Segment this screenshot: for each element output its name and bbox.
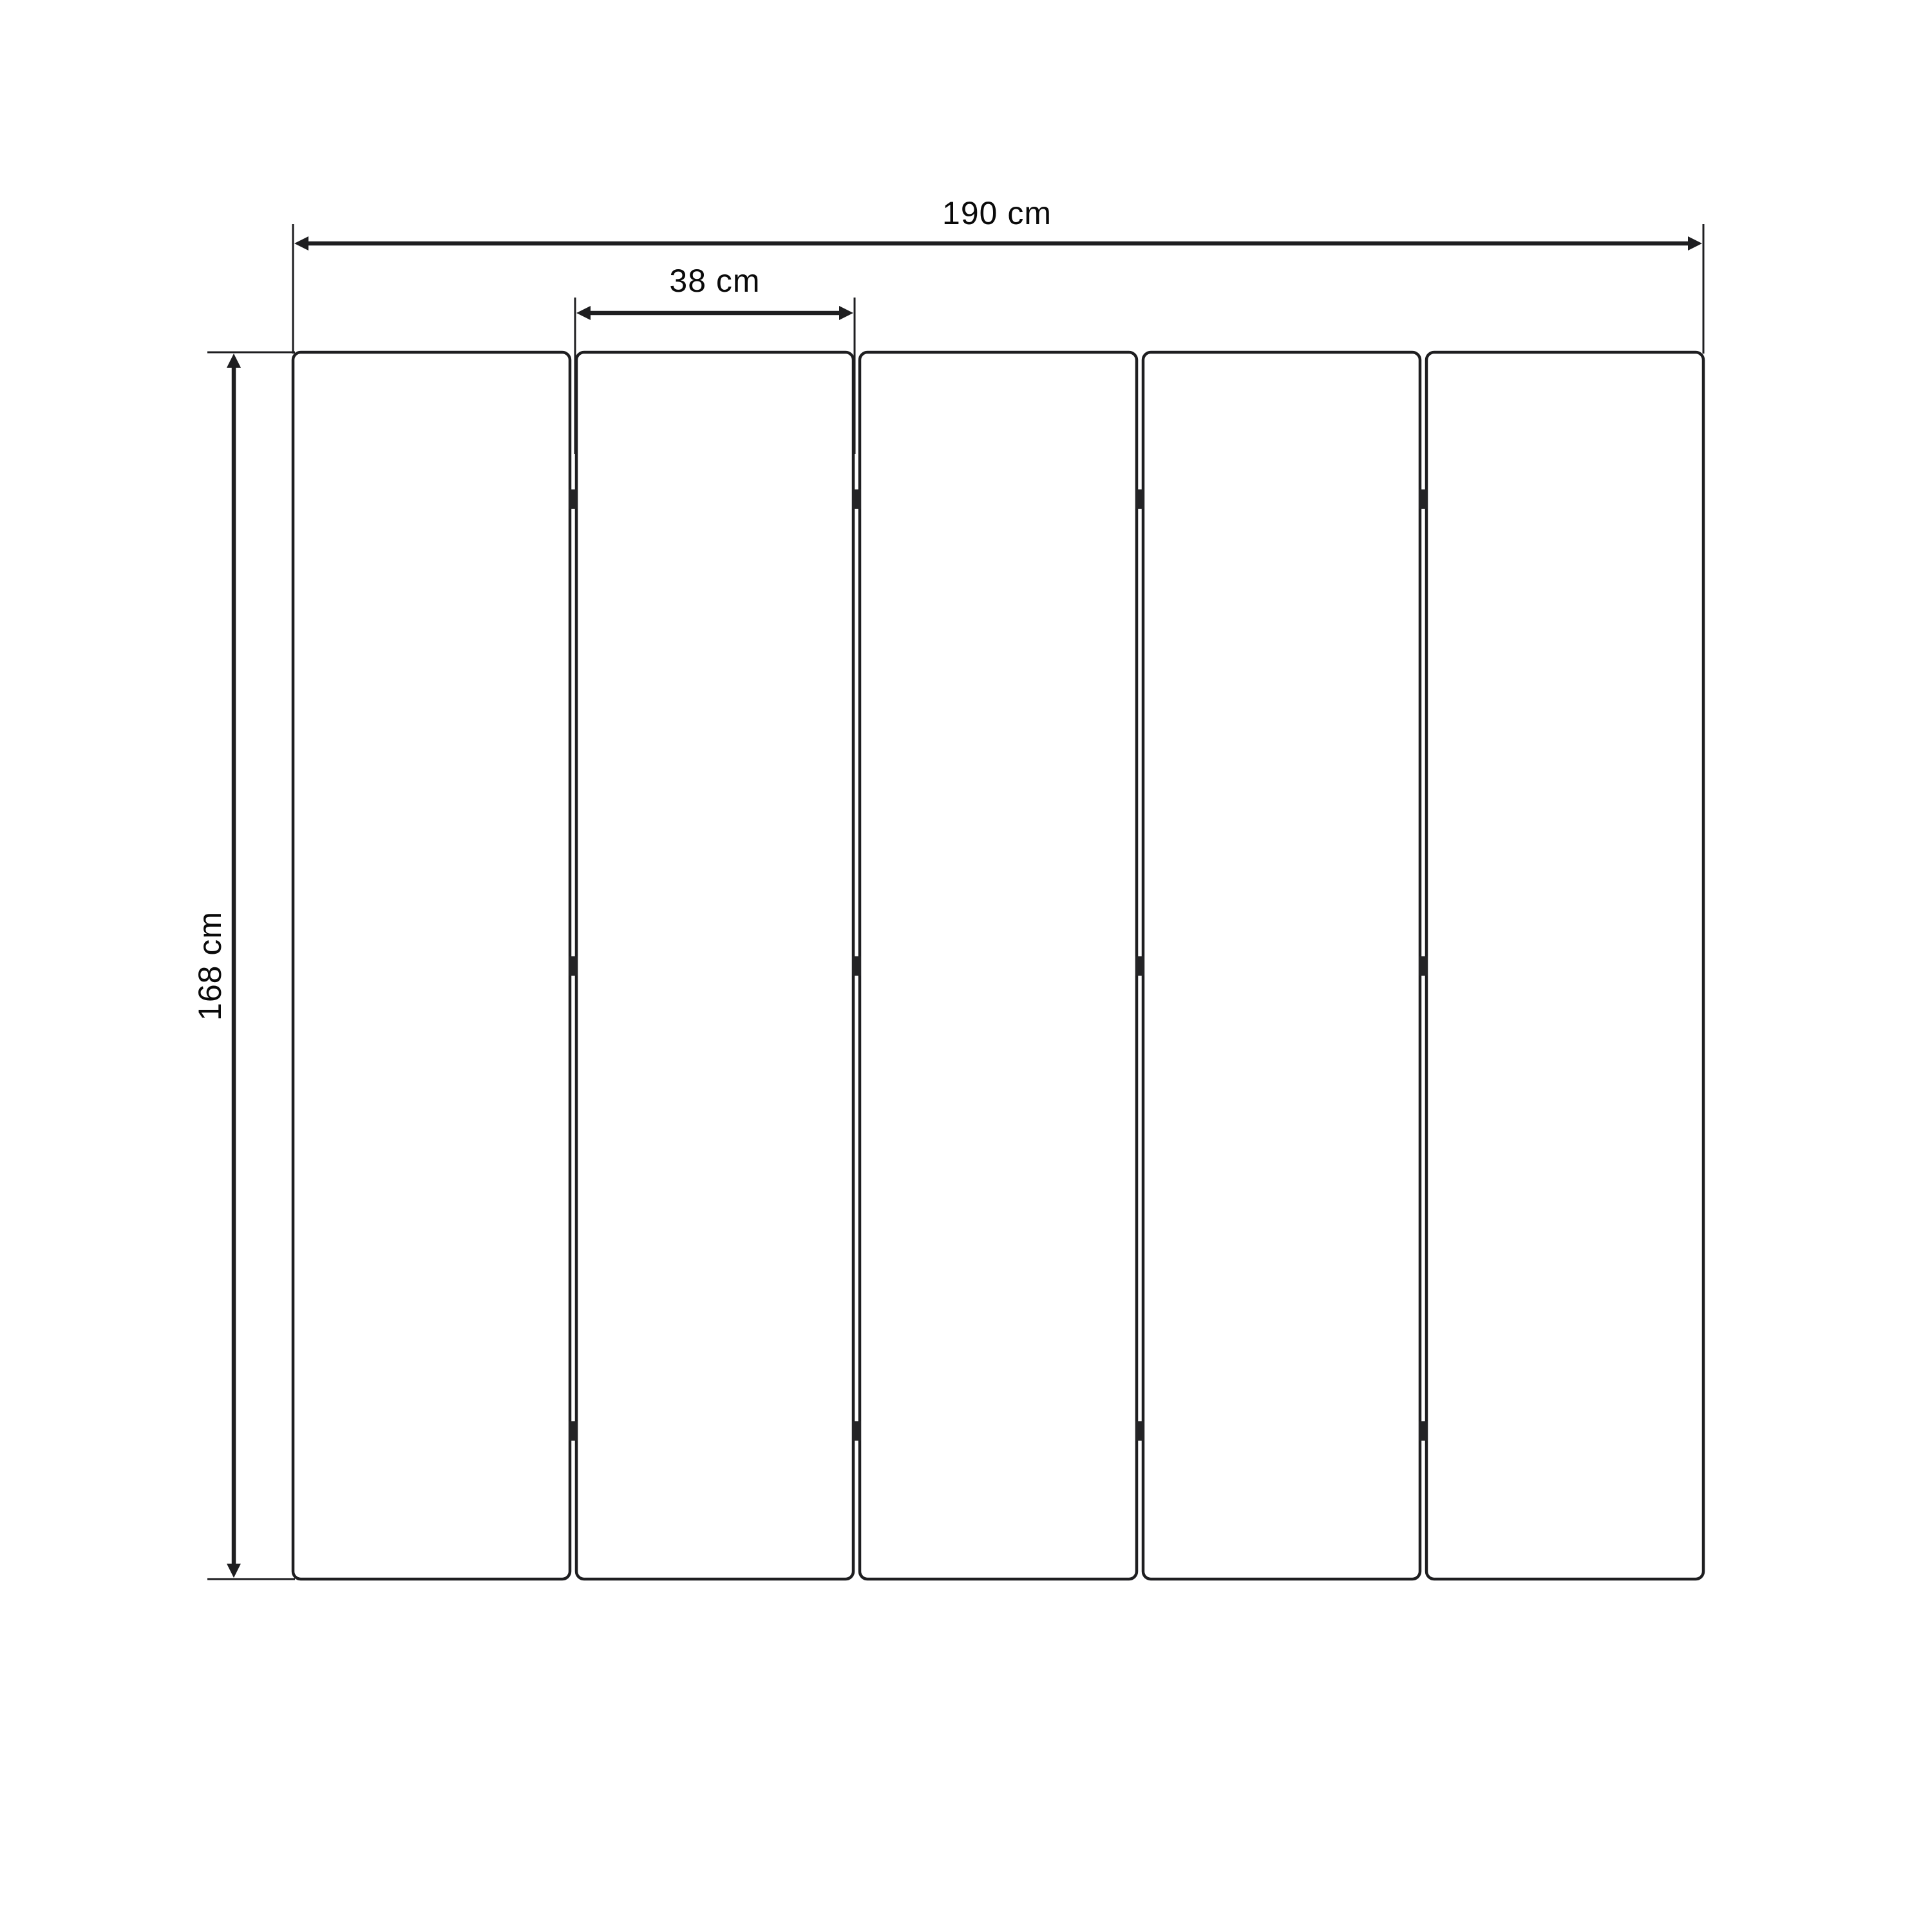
total-width-dimension: 190 cm xyxy=(293,195,1703,354)
hinge-junction-4-row-3 xyxy=(1419,1421,1428,1441)
hinge-junction-4-row-1 xyxy=(1419,489,1428,509)
arrowhead-up-icon xyxy=(227,354,241,368)
arrowhead-down-icon xyxy=(227,1564,241,1578)
panel-2 xyxy=(576,352,853,1579)
hinge-junction-1-row-1 xyxy=(569,489,578,509)
hinge-junction-4-row-2 xyxy=(1419,956,1428,976)
hinge-junction-2-row-3 xyxy=(852,1421,861,1441)
hinge-junction-1-row-2 xyxy=(569,956,578,976)
arrowhead-right-icon xyxy=(839,306,853,320)
total-width-label: 190 cm xyxy=(942,195,1052,231)
hinge-junction-1-row-3 xyxy=(569,1421,578,1441)
height-label: 168 cm xyxy=(192,911,228,1021)
panel-1 xyxy=(293,352,570,1579)
panel-3 xyxy=(860,352,1137,1579)
height-dimension: 168 cm xyxy=(192,352,295,1579)
panel-4 xyxy=(1143,352,1420,1579)
arrowhead-left-icon xyxy=(576,306,591,320)
panel-5 xyxy=(1426,352,1703,1579)
hinge-junction-2-row-1 xyxy=(852,489,861,509)
dimension-drawing-page: 190 cm 38 cm 168 cm xyxy=(0,0,1932,1932)
hinge-junction-3-row-1 xyxy=(1135,489,1144,509)
hinge-junction-3-row-2 xyxy=(1135,956,1144,976)
hinge-junction-3-row-3 xyxy=(1135,1421,1144,1441)
arrowhead-right-icon xyxy=(1688,236,1702,251)
panel-width-label: 38 cm xyxy=(669,263,760,299)
folding-screen-diagram: 190 cm 38 cm 168 cm xyxy=(0,0,1932,1932)
arrowhead-left-icon xyxy=(294,236,308,251)
panels-group xyxy=(293,352,1703,1579)
hinge-junction-2-row-2 xyxy=(852,956,861,976)
